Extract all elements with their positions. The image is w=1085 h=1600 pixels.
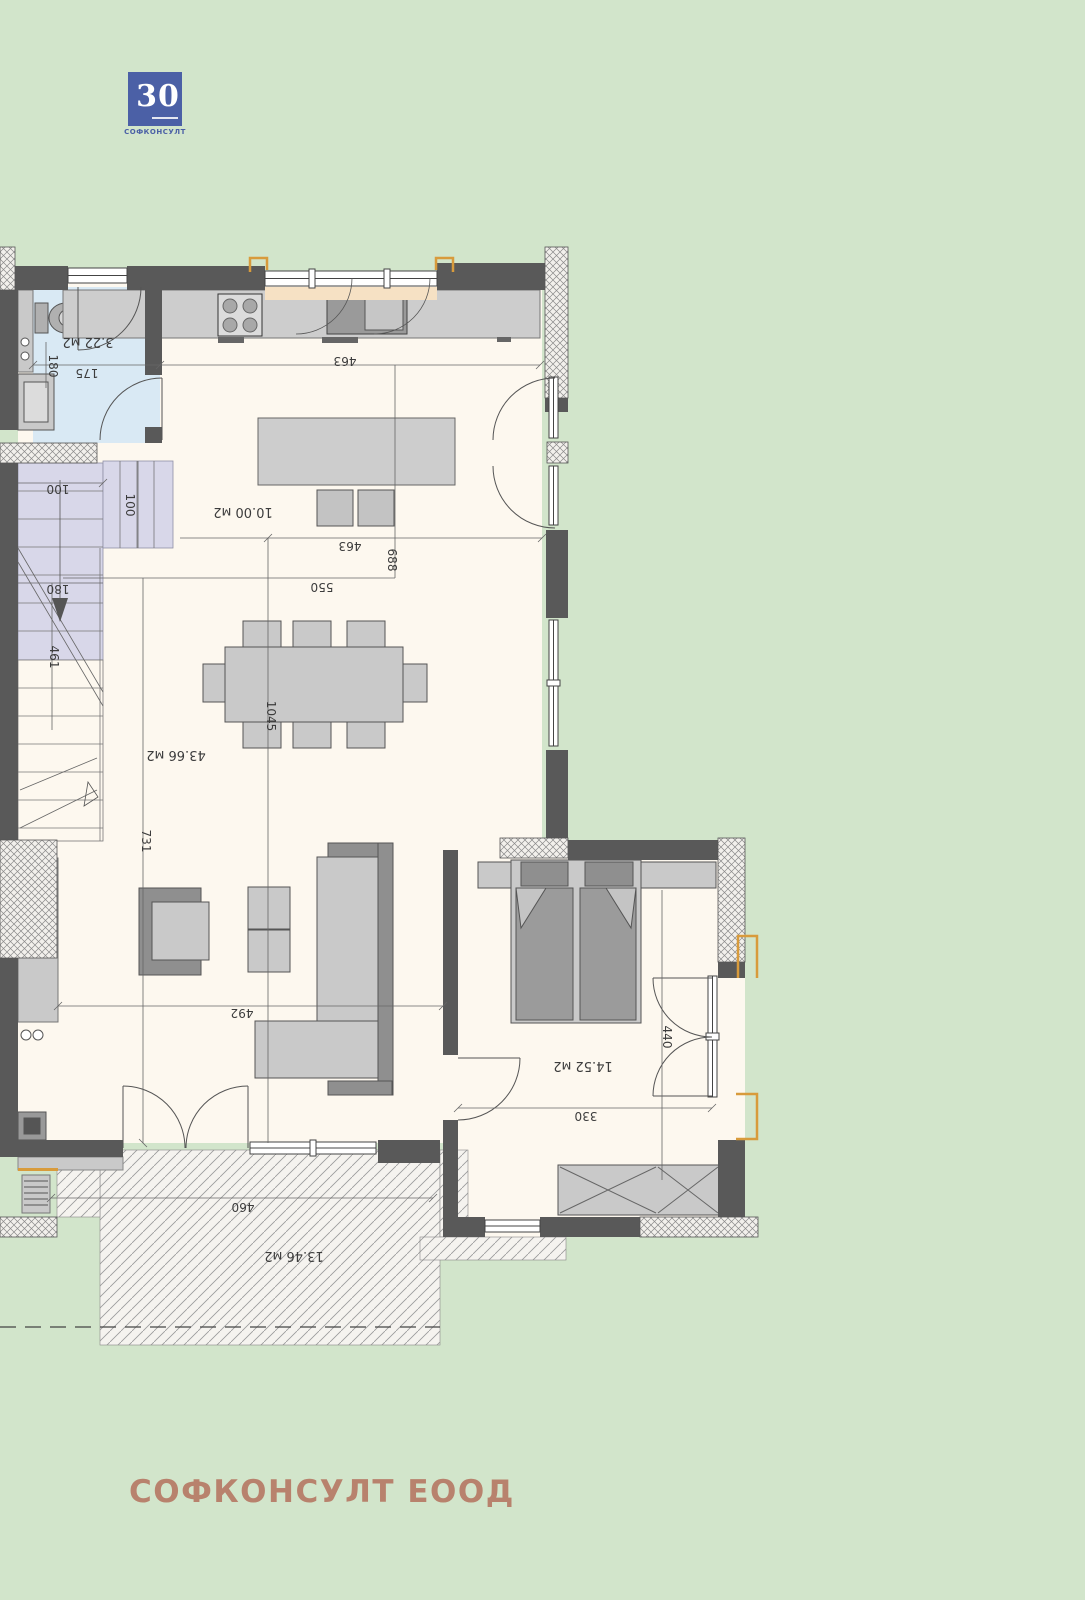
tap-icon <box>21 352 29 360</box>
kitchen-area-label: 10.00 м2 <box>213 504 272 519</box>
wall <box>0 463 18 840</box>
burner-icon <box>243 299 257 313</box>
entry-door-panel <box>549 377 558 438</box>
counter-tick <box>322 337 358 343</box>
bath-window <box>68 268 127 283</box>
pillow <box>585 862 633 886</box>
dim-label: 330 <box>575 1109 598 1123</box>
toilet-tank <box>35 303 48 333</box>
dining-chair <box>293 621 331 647</box>
dim-label: 100 <box>47 482 70 496</box>
counter-tick <box>497 337 511 342</box>
kitchen-island <box>258 418 455 485</box>
burner-icon <box>223 318 237 332</box>
dim-label: 461 <box>47 646 61 669</box>
wall <box>546 750 568 840</box>
burner-icon <box>223 299 237 313</box>
floor-plan: 3.22 м2 10.00 м2 43.66 м2 14.52 м2 13.46… <box>0 0 1085 1600</box>
dining-table <box>225 647 403 722</box>
wall <box>378 1140 440 1163</box>
bathroom-area-label: 3.22 м2 <box>62 334 113 349</box>
living-sliding-window <box>250 1140 376 1156</box>
burner-icon <box>243 318 257 332</box>
dining-chair <box>243 621 281 647</box>
wardrobe <box>558 1165 720 1215</box>
pier <box>640 1217 758 1237</box>
wall <box>718 1140 745 1217</box>
knob-icon <box>33 1030 43 1040</box>
pier <box>718 838 745 962</box>
dim-label: 175 <box>76 366 99 380</box>
terrace-area-label: 13.46 м2 <box>264 1248 323 1263</box>
shutter-marker <box>18 1168 58 1171</box>
wall <box>0 958 18 1140</box>
sofa-back <box>328 1081 392 1095</box>
entry-door-panel <box>549 466 558 525</box>
washing-machine-drum <box>24 382 48 422</box>
bedroom-bottom-window <box>485 1220 540 1232</box>
dim-label: 731 <box>139 830 153 853</box>
dim-label: 460 <box>232 1200 255 1214</box>
knob-icon <box>21 1030 31 1040</box>
bedroom-area-label: 14.52 м2 <box>553 1058 612 1073</box>
wall <box>443 850 458 1055</box>
dining-chair <box>347 621 385 647</box>
terrace-hatch-left <box>57 1163 100 1217</box>
dim-label: 492 <box>231 1006 254 1020</box>
dining-chair <box>347 722 385 748</box>
shaft-core <box>24 1118 40 1134</box>
wall <box>718 962 745 978</box>
sofa-seat <box>317 857 378 1021</box>
pier <box>545 247 568 398</box>
coffee-table <box>248 887 290 929</box>
kitchen-window <box>265 269 437 288</box>
stair-lower-flight <box>18 660 103 841</box>
living-side-window <box>547 620 560 746</box>
pillow <box>521 862 568 886</box>
tap-icon <box>21 338 29 346</box>
dim-label: 463 <box>334 354 357 368</box>
wall <box>0 280 18 430</box>
dim-label: 463 <box>339 539 362 553</box>
dining-chair <box>203 664 227 702</box>
dim-label: 100 <box>123 494 137 517</box>
dim-label: 1045 <box>264 701 278 732</box>
dim-label: 550 <box>311 580 334 594</box>
sofa-back <box>378 843 393 1095</box>
bar-stool <box>358 490 394 526</box>
wall <box>145 280 162 375</box>
pier <box>0 247 15 290</box>
sofa-seat <box>255 1021 378 1078</box>
terrace-hatch <box>100 1150 440 1345</box>
dining-chair <box>293 722 331 748</box>
wall <box>443 1120 458 1220</box>
pier <box>0 443 97 463</box>
wall <box>546 530 568 618</box>
dim-label: 180 <box>47 582 70 596</box>
counter-tick <box>218 337 244 343</box>
wall <box>0 1140 123 1157</box>
wall <box>540 1217 640 1237</box>
wall <box>145 427 162 443</box>
pier <box>547 442 568 463</box>
company-name: СОФКОНСУЛТ ЕООД <box>129 1474 515 1510</box>
wall <box>14 266 68 290</box>
wall <box>568 840 718 860</box>
armchair-seat <box>152 902 209 960</box>
pier <box>500 838 568 858</box>
dim-label: 440 <box>660 1026 674 1049</box>
pier <box>0 840 57 958</box>
pier <box>0 1217 57 1237</box>
dim-label: 180 <box>46 355 60 378</box>
dim-label: 688 <box>385 549 399 572</box>
living-area-label: 43.66 м2 <box>146 747 205 762</box>
terrace-hatch-bottom <box>420 1237 566 1260</box>
dining-chair <box>403 664 427 702</box>
coffee-table <box>248 930 290 972</box>
bar-stool <box>317 490 353 526</box>
sink-basin <box>365 298 403 330</box>
page: 30 СОФКОНСУЛТ <box>0 0 1085 1600</box>
wall <box>443 1217 485 1237</box>
